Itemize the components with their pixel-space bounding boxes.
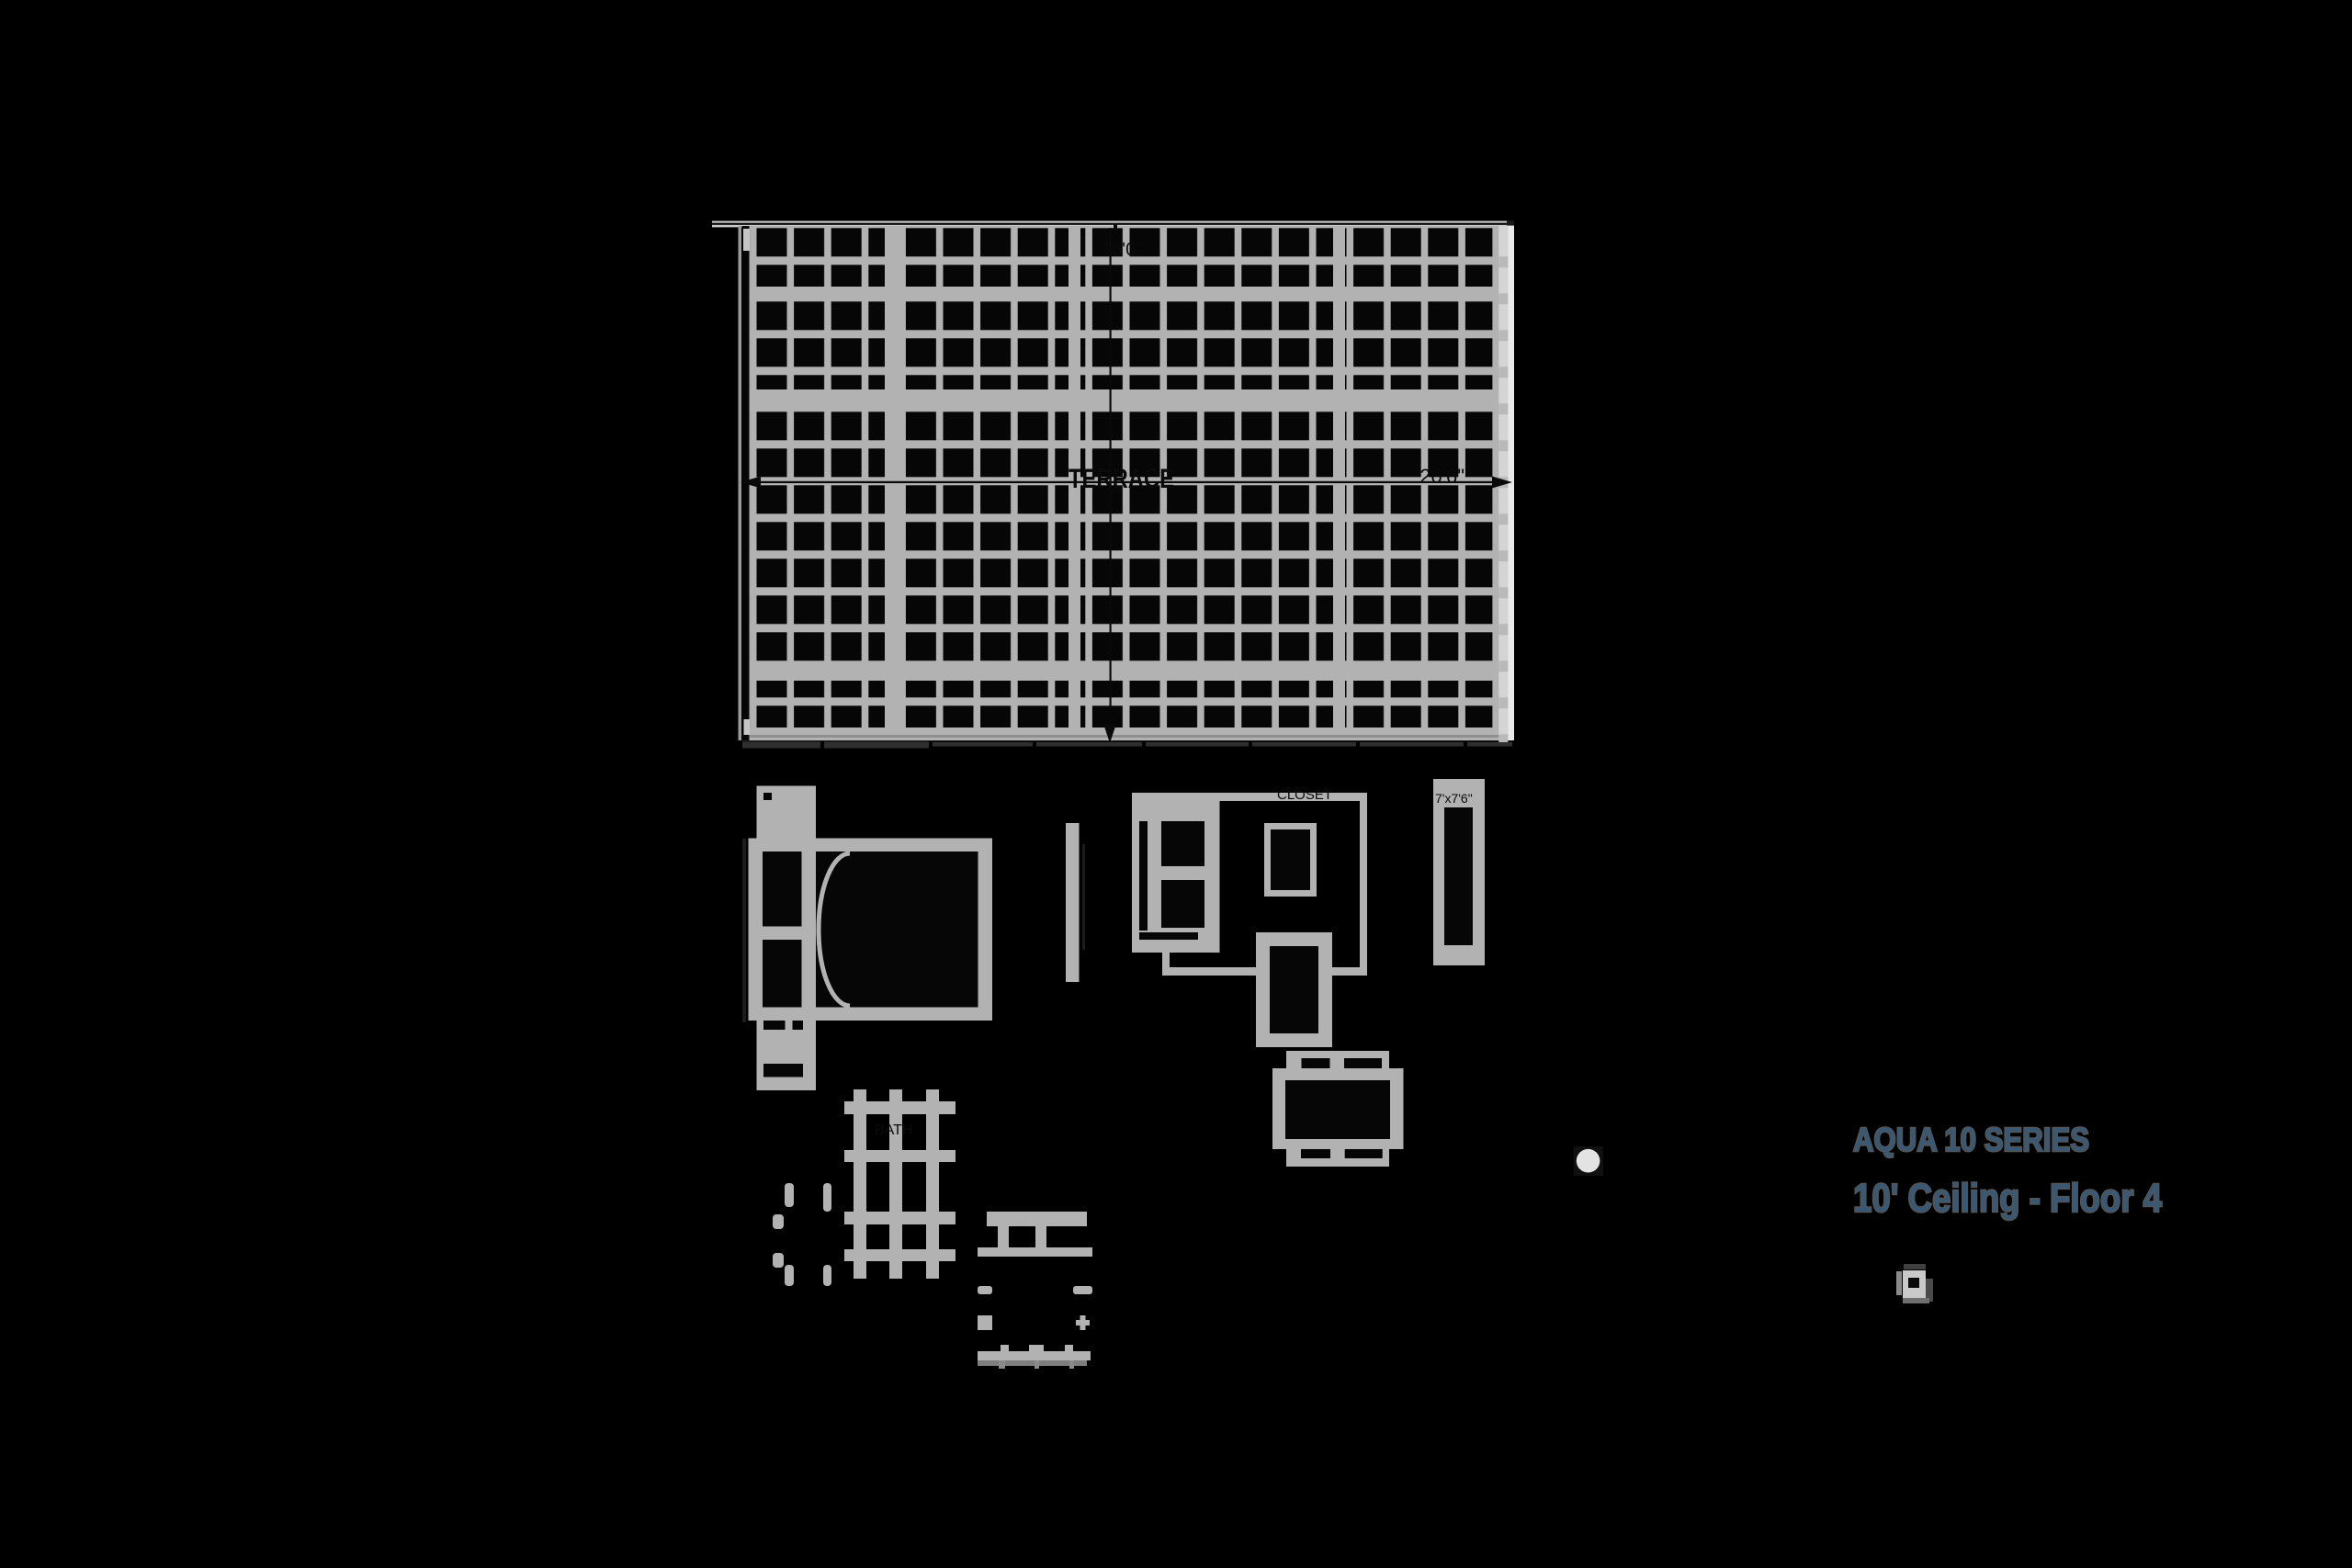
svg-text:20'6": 20'6" — [1419, 465, 1464, 488]
svg-text:BATH: BATH — [875, 1122, 912, 1138]
svg-text:7'x7'6": 7'x7'6" — [1435, 791, 1473, 806]
svg-text:10' Ceiling - Floor 4: 10' Ceiling - Floor 4 — [1853, 1176, 2162, 1221]
svg-text:AQUA 10 SERIES: AQUA 10 SERIES — [1853, 1121, 2089, 1158]
svg-text:TERRACE: TERRACE — [1069, 464, 1174, 494]
svg-text:CLOSET: CLOSET — [1277, 787, 1332, 803]
svg-text:16'0": 16'0" — [1102, 240, 1142, 260]
